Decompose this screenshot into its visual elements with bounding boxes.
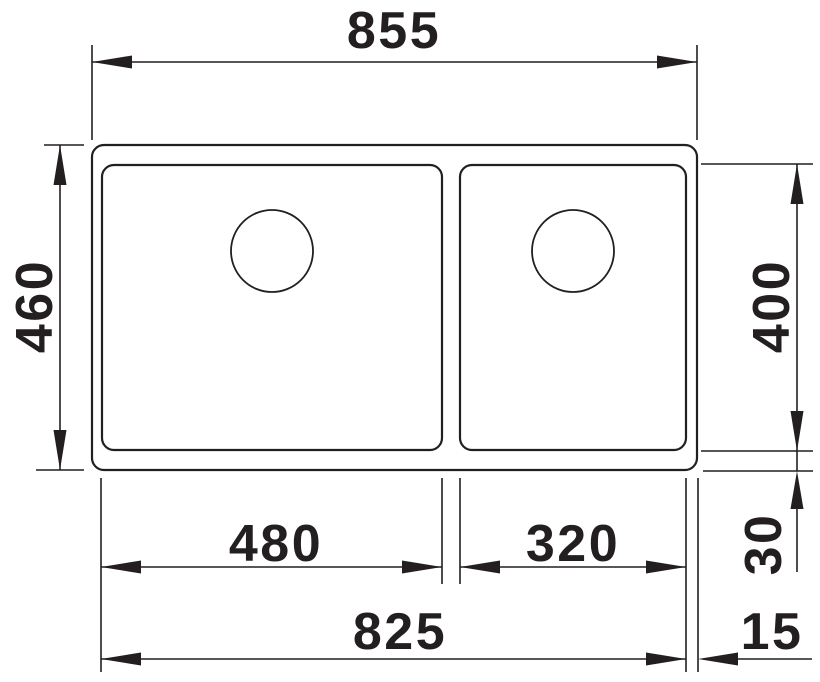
left-drain-hole (231, 210, 313, 292)
dim-label-bottom-offset: 30 (735, 513, 793, 576)
arrow-right-icon (402, 561, 442, 574)
arrow-up-icon (54, 145, 67, 185)
dim-overall-depth: 460 (6, 145, 84, 470)
dim-label-right-bowl-width: 320 (526, 515, 620, 573)
arrow-left-icon (92, 56, 132, 69)
arrow-left-icon (698, 653, 738, 666)
arrow-down-icon (791, 411, 804, 451)
sink-outline (92, 145, 697, 470)
dim-label-overall-depth: 460 (6, 259, 64, 353)
arrow-right-icon (646, 561, 686, 574)
dim-label-bowl-depth: 400 (743, 259, 801, 353)
arrow-up-icon (791, 471, 804, 509)
arrow-left-icon (101, 653, 141, 666)
arrow-right-icon (646, 653, 686, 666)
arrow-left-icon (101, 561, 141, 574)
left-bowl (102, 165, 442, 450)
dim-bowls-span: 825 (101, 603, 686, 666)
sink-dimension-drawing: 855 460 400 30 (0, 0, 820, 682)
sink-outer-edge (92, 145, 697, 470)
dim-bowl-depth: 400 (701, 164, 813, 451)
arrow-right-icon (657, 56, 697, 69)
dim-right-bowl-width: 320 (460, 478, 686, 672)
drawing-canvas: 855 460 400 30 (0, 0, 820, 682)
right-drain-hole (532, 210, 614, 292)
dim-label-right-offset: 15 (741, 603, 804, 661)
arrow-left-icon (460, 561, 500, 574)
dim-bottom-offset: 30 (703, 451, 813, 575)
arrow-down-icon (54, 430, 67, 470)
dim-label-bowls-span: 825 (353, 603, 447, 661)
arrow-up-icon (791, 164, 804, 204)
dim-label-overall-width: 855 (347, 2, 441, 60)
right-bowl (460, 165, 686, 450)
dim-label-left-bowl-width: 480 (229, 515, 323, 573)
dim-overall-width: 855 (92, 2, 697, 140)
